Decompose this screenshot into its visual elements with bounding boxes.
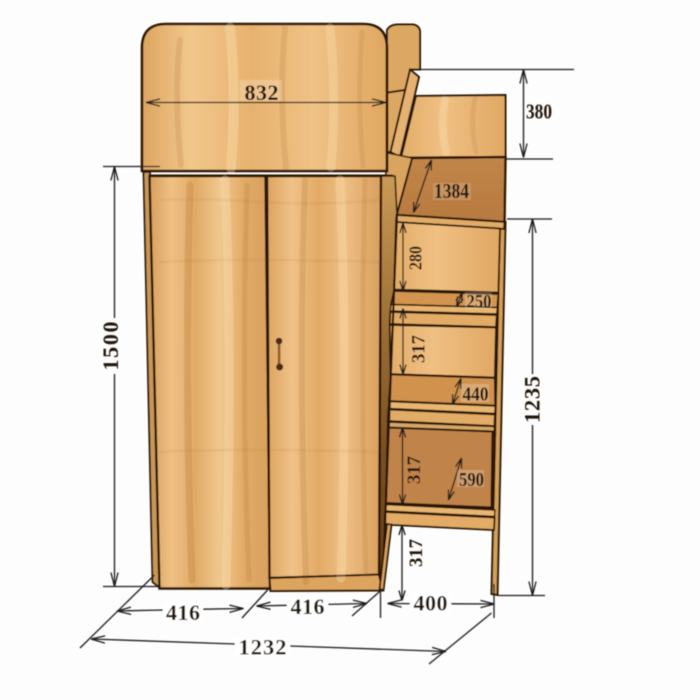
svg-text:317: 317 bbox=[404, 456, 425, 484]
svg-text:590: 590 bbox=[459, 470, 484, 491]
svg-text:1384: 1384 bbox=[434, 179, 469, 203]
svg-text:380: 380 bbox=[526, 100, 552, 124]
svg-text:416: 416 bbox=[291, 594, 325, 619]
svg-text:317: 317 bbox=[409, 335, 430, 363]
svg-text:400: 400 bbox=[414, 591, 448, 616]
svg-text:440: 440 bbox=[463, 385, 489, 406]
svg-text:317: 317 bbox=[406, 539, 427, 567]
svg-text:416: 416 bbox=[166, 600, 200, 625]
svg-text:1232: 1232 bbox=[239, 635, 287, 660]
svg-text:832: 832 bbox=[245, 80, 279, 105]
svg-text:1235: 1235 bbox=[520, 376, 545, 423]
svg-text:250: 250 bbox=[467, 293, 492, 313]
svg-text:1500: 1500 bbox=[98, 322, 123, 371]
svg-text:280: 280 bbox=[406, 246, 426, 270]
